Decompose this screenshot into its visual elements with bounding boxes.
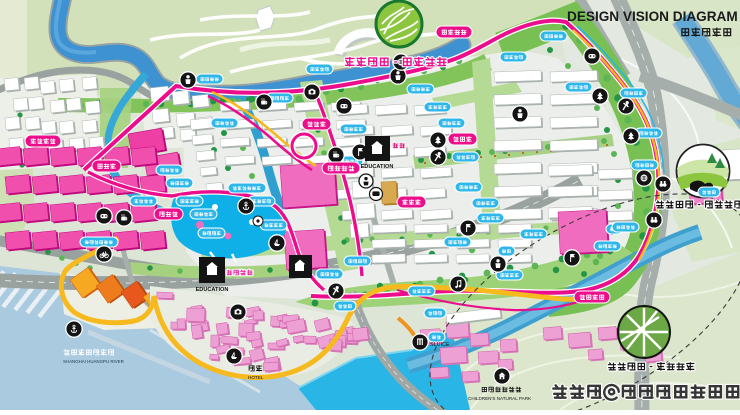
svg-text:EDUCATION: EDUCATION [361,164,394,170]
svg-text:SLUICE: SLUICE [430,342,450,348]
svg-text:CHILDREN'S NATURAL PARK: CHILDREN'S NATURAL PARK [468,396,532,401]
svg-text:DESIGN VISION DIAGRAM: DESIGN VISION DIAGRAM [567,9,738,24]
svg-text:SHANGHAI HUANGPU RIVER: SHANGHAI HUANGPU RIVER [63,359,124,364]
svg-text:HOTEL: HOTEL [248,375,264,380]
svg-text:EDUCATION: EDUCATION [196,287,229,293]
